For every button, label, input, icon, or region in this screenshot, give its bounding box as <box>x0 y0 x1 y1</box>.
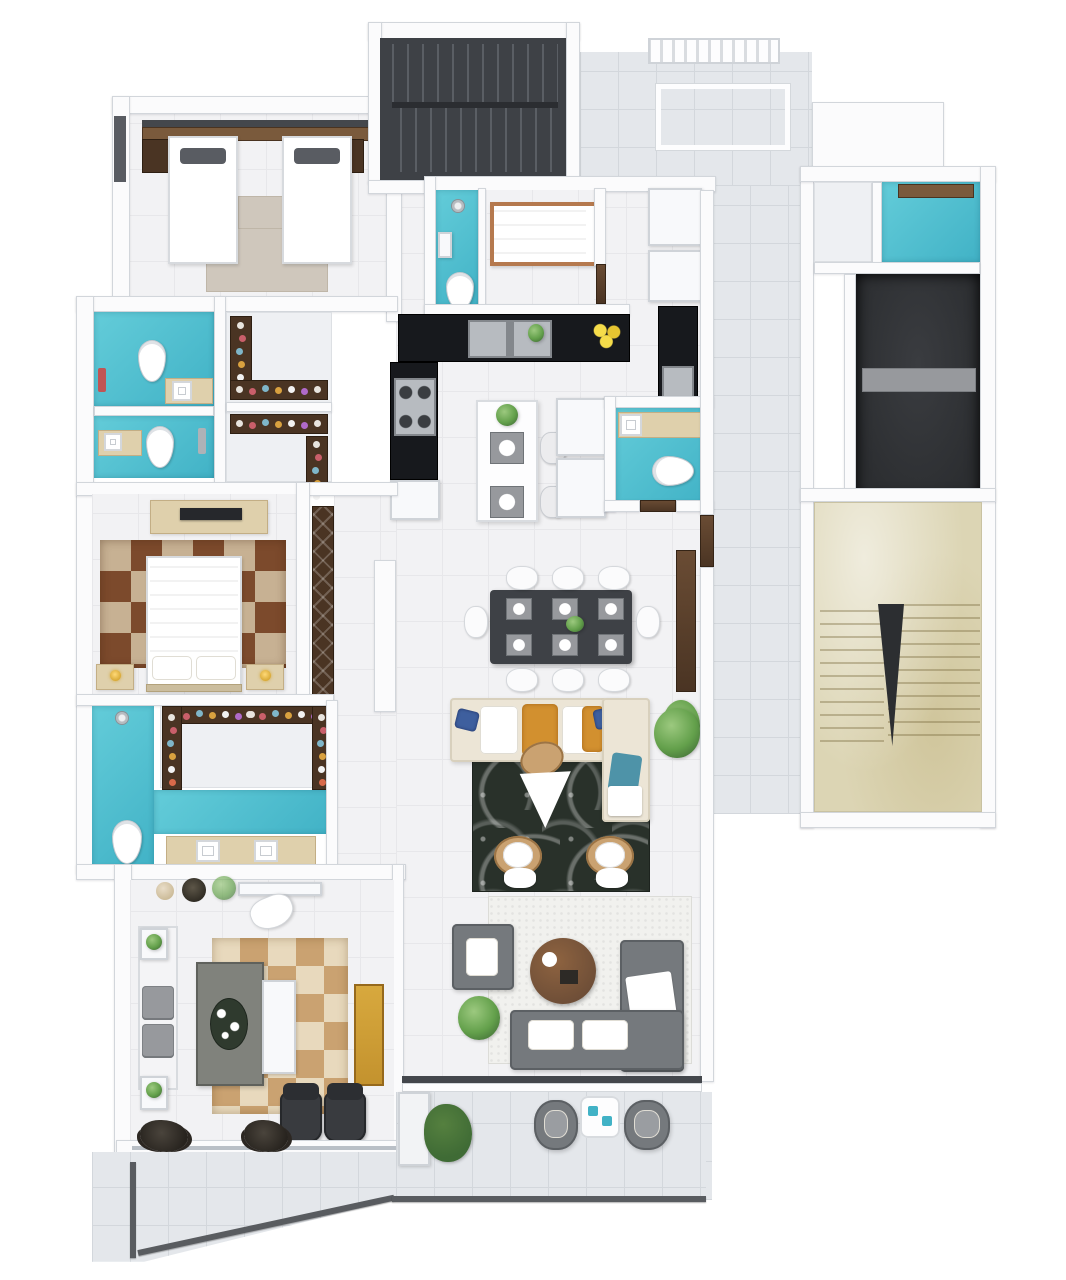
white-throw <box>608 786 642 816</box>
pillow <box>294 148 340 164</box>
outdoor-chair <box>534 1100 578 1150</box>
gas-stove <box>394 378 436 436</box>
bath-divider-wall <box>94 406 214 416</box>
herb-plant <box>528 324 544 342</box>
teal-cup <box>602 1116 612 1126</box>
headboard <box>146 684 242 692</box>
stairhall-top-wall <box>800 488 996 502</box>
fruit-bowl-decor <box>590 320 624 350</box>
place-setting <box>490 486 524 518</box>
dining-chair <box>598 566 630 590</box>
daybed-cushion <box>142 1024 174 1058</box>
living-window-wall <box>374 560 396 712</box>
unit-right-wall-upper <box>700 190 714 515</box>
footstool <box>596 868 628 888</box>
bath-block-top-wall <box>76 296 398 312</box>
ensuite-divider-wall <box>478 188 486 308</box>
marble-stair-flight-left <box>820 610 884 746</box>
mattress <box>494 206 586 254</box>
chair-back <box>327 1083 362 1100</box>
master-closet-shelf-top <box>162 706 332 724</box>
apartment-floor-plan <box>0 0 1066 1280</box>
dining-chair <box>506 668 538 692</box>
closet-divider-wall <box>214 296 226 492</box>
master-bottom-wall <box>76 694 334 706</box>
clothes-row <box>236 420 243 427</box>
double-vanity <box>166 836 316 866</box>
duvet <box>150 560 238 652</box>
balcony-bush <box>424 1104 472 1162</box>
tv-media-panel <box>676 550 696 692</box>
bath-shelf <box>438 232 452 258</box>
outdoor-table <box>580 1096 620 1138</box>
shower-head-icon <box>116 712 128 724</box>
powder-top-wall <box>604 396 714 408</box>
single-bed <box>490 202 598 266</box>
office-cabinet <box>262 980 296 1074</box>
hall-wardrobe <box>312 506 334 698</box>
fridge-cabinet <box>556 398 606 456</box>
chair-back <box>283 1083 318 1100</box>
blue-pillow <box>454 708 480 733</box>
sectional-sofa-bottom <box>510 1010 684 1070</box>
place-setting <box>506 598 532 620</box>
entry-door-threshold <box>700 515 714 567</box>
family-plant <box>458 996 500 1040</box>
sofa-chaise <box>602 698 650 822</box>
dining-chair <box>464 606 488 638</box>
dining-chair <box>506 566 538 590</box>
powder-door-threshold <box>640 500 676 512</box>
dining-chair <box>552 668 584 692</box>
place-setting <box>506 634 532 656</box>
shoes-row <box>313 441 320 448</box>
closet-shelf-mid <box>230 380 328 400</box>
pillow <box>152 656 192 680</box>
chair-cushion <box>595 842 626 868</box>
table-books <box>560 970 578 984</box>
unit-right-wall-lower <box>700 567 714 1082</box>
fridge-cabinet <box>556 458 606 518</box>
sink <box>196 840 220 862</box>
table-centerpiece <box>566 616 584 632</box>
railing-vertical <box>130 1162 136 1258</box>
twin-bed-left <box>168 136 238 264</box>
towel-rail-gray <box>198 428 206 454</box>
vestibule-wall-block <box>812 102 944 168</box>
twig-plant <box>212 876 236 900</box>
entry-door-mat <box>656 84 790 150</box>
gold-bookshelf <box>354 984 384 1086</box>
towel-rail-red <box>98 368 106 392</box>
master-bath-floor-band <box>154 790 332 834</box>
service-storage-floor <box>814 182 872 262</box>
place-setting <box>552 634 578 656</box>
place-setting <box>598 634 624 656</box>
decor-bowl <box>182 878 206 902</box>
chair-cushion <box>634 1110 660 1138</box>
dining-chair <box>636 606 660 638</box>
stair-upper-flight <box>392 44 558 102</box>
pillow <box>180 148 226 164</box>
entry-door-grille <box>648 38 780 64</box>
powder-bottom-wall-a <box>604 500 640 512</box>
shoes-row <box>318 714 325 721</box>
place-setting <box>598 598 624 620</box>
master-right-wall <box>296 482 310 698</box>
shaft-left-wall <box>844 274 856 498</box>
stairwell-right-wall <box>566 22 580 194</box>
ensuite-left-wall <box>424 176 436 316</box>
sofa-cushion <box>528 1020 574 1050</box>
service-bottom-wall <box>800 812 996 828</box>
twin-bed-right <box>282 136 352 264</box>
terrace-floor <box>92 1152 706 1264</box>
service-top-wall <box>800 166 996 182</box>
sink <box>104 433 122 451</box>
service-corridor-floor <box>712 186 812 814</box>
window-shade-panel <box>114 116 126 182</box>
clothes-row <box>236 386 243 393</box>
pantry-cabinet-lower <box>648 250 702 302</box>
office-chair <box>324 1092 366 1142</box>
outdoor-chair <box>624 1100 670 1150</box>
place-setting <box>490 432 524 464</box>
closet-shelf-lower <box>230 414 328 434</box>
shaft-shelf <box>862 368 976 392</box>
powder-sink <box>620 414 642 436</box>
dining-chair <box>552 566 584 590</box>
dining-chair <box>598 668 630 692</box>
dry-shrub <box>244 1120 288 1152</box>
table-bowl <box>542 952 557 967</box>
powder-left-wall <box>604 396 616 512</box>
pillow <box>196 656 236 680</box>
sink <box>172 381 192 401</box>
daybed-cushion <box>142 986 174 1020</box>
chair-cushion <box>503 842 534 868</box>
sliding-door-track <box>402 1076 702 1083</box>
footstool <box>504 868 536 888</box>
shoes-row <box>237 322 244 329</box>
closet-mid-wall <box>226 402 332 412</box>
stair-lower-flight <box>400 108 558 172</box>
twin-bedroom-top-wall <box>112 96 402 114</box>
railing-horizontal <box>392 1196 706 1202</box>
desk-tray <box>210 998 248 1050</box>
island-plant <box>496 404 518 426</box>
gray-armchair <box>452 924 514 990</box>
clothes-row <box>246 711 253 718</box>
side-table-plant <box>146 934 162 950</box>
lamp <box>260 670 271 681</box>
storage-laundry-divider <box>872 182 882 266</box>
curtain-track <box>142 120 372 127</box>
tv-screen <box>180 508 242 520</box>
chair-cushion <box>544 1110 568 1138</box>
sofa-side-plant <box>654 708 700 758</box>
pantry-cabinet-upper <box>648 188 702 246</box>
teal-cup <box>588 1106 598 1116</box>
laundry-shelf <box>898 184 974 198</box>
sink <box>254 840 278 862</box>
shower-head-icon <box>452 200 464 212</box>
round-coffee-table <box>530 938 596 1004</box>
single-bedroom-right-wall <box>594 188 606 266</box>
sliding-door-sill <box>402 1083 702 1092</box>
service-mid-wall <box>814 262 980 274</box>
pouf <box>156 882 174 900</box>
door-threshold <box>596 264 606 304</box>
master-bed <box>146 556 242 692</box>
chair-cushion <box>466 938 498 976</box>
sofa-cushion <box>480 706 518 754</box>
lamp <box>110 670 121 681</box>
sofa-cushion <box>582 1020 628 1050</box>
master-closet-right-wall <box>326 700 338 876</box>
master-closet-shelf-left <box>162 706 182 790</box>
shoes-row <box>168 714 175 721</box>
side-table-plant <box>146 1082 162 1098</box>
